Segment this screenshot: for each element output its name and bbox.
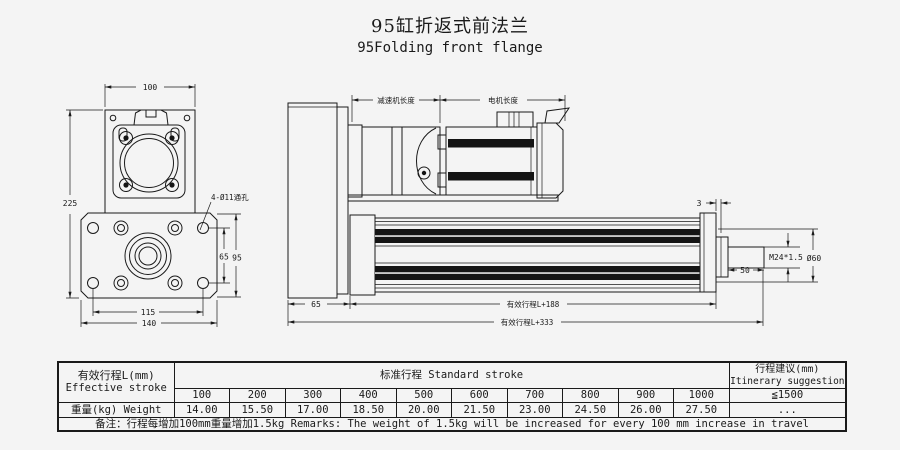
flange-plate-side: [288, 103, 337, 298]
cylinder-body: [350, 215, 700, 295]
dim-140: 140: [142, 319, 157, 328]
weight-row: 重量(kg) Weight 14.00 15.50 17.00 18.50 20…: [58, 402, 846, 417]
effective-stroke-header: 有效行程L(mm) Effective stroke: [58, 362, 174, 402]
weight-value: 14.00: [174, 402, 230, 417]
dim-rod-thread: M24*1.5: [769, 253, 803, 262]
stroke-value: 500: [396, 388, 452, 402]
rod-end: [700, 213, 764, 292]
stroke-value: 1000: [674, 388, 730, 402]
weight-value: 24.50: [563, 402, 619, 417]
dim-flange-thk: 65: [311, 300, 321, 309]
dim-total-length: 有效行程L+333: [501, 317, 554, 327]
page: 95缸折返式前法兰 95Folding front flange: [0, 0, 900, 450]
suggestion-en: Itinerary suggestion: [730, 376, 846, 387]
front-view: [81, 110, 217, 298]
suggestion-zh: 行程建议(mm): [730, 364, 846, 376]
suggestion-header: 行程建议(mm) Itinerary suggestion: [729, 362, 846, 388]
stroke-value: 200: [230, 388, 286, 402]
stroke-value: 700: [507, 388, 563, 402]
effective-stroke-en: Effective stroke: [59, 382, 174, 394]
suggestion-value: ≦1500: [729, 388, 846, 402]
spec-table: 有效行程L(mm) Effective stroke 标准行程 Standard…: [57, 361, 847, 432]
dim-95: 95: [232, 254, 242, 263]
reducer: [348, 125, 446, 197]
stroke-value: 300: [285, 388, 341, 402]
motor: [446, 108, 569, 198]
dim-3: 3: [697, 199, 702, 208]
weight-value: 17.00: [285, 402, 341, 417]
weight-value: 23.00: [507, 402, 563, 417]
weight-value: 15.50: [230, 402, 286, 417]
motor-connector-top: [497, 112, 533, 127]
dim-rod-dia: Ø60: [807, 253, 822, 263]
weight-extra: ...: [729, 402, 846, 417]
side-view: [288, 103, 764, 298]
standard-stroke-header: 标准行程 Standard stroke: [174, 362, 729, 388]
dim-115: 115: [141, 308, 156, 317]
stroke-value: 400: [341, 388, 397, 402]
weight-value: 21.50: [452, 402, 508, 417]
front-flange: [81, 213, 217, 298]
stroke-value: 600: [452, 388, 508, 402]
motor-flange-bolts: [120, 132, 179, 192]
dim-225: 225: [63, 199, 78, 208]
stroke-row: 100 200 300 400 500 600 700 800 900 1000…: [58, 388, 846, 402]
dim-50: 50: [740, 266, 750, 275]
stroke-value: 800: [563, 388, 619, 402]
dim-motor-length: 电机长度: [488, 95, 518, 105]
hole-callout: 4-Ø11通孔: [211, 192, 249, 202]
dim-body-length: 有效行程L+188: [507, 299, 560, 309]
motor-connector-side: [545, 108, 569, 123]
dim-reducer-length: 减速机长度: [377, 95, 415, 105]
stroke-value: 100: [174, 388, 230, 402]
weight-label: 重量(kg) Weight: [58, 402, 174, 417]
weight-value: 27.50: [674, 402, 730, 417]
remarks: 备注：行程每增加100mm重量增加1.5kg Remarks: The weig…: [58, 417, 846, 431]
flange-bolts: [114, 221, 182, 290]
weight-value: 26.00: [618, 402, 674, 417]
dim-65: 65: [219, 253, 229, 262]
weight-value: 20.00: [396, 402, 452, 417]
front-view-dimensions: 100 225 65 95 115 140 4-Ø11通孔: [63, 83, 249, 328]
piston-rod: [728, 247, 764, 268]
effective-stroke-zh: 有效行程L(mm): [59, 370, 174, 382]
weight-value: 18.50: [341, 402, 397, 417]
dim-100: 100: [143, 83, 158, 92]
center-bore: [125, 233, 171, 279]
stroke-value: 900: [618, 388, 674, 402]
